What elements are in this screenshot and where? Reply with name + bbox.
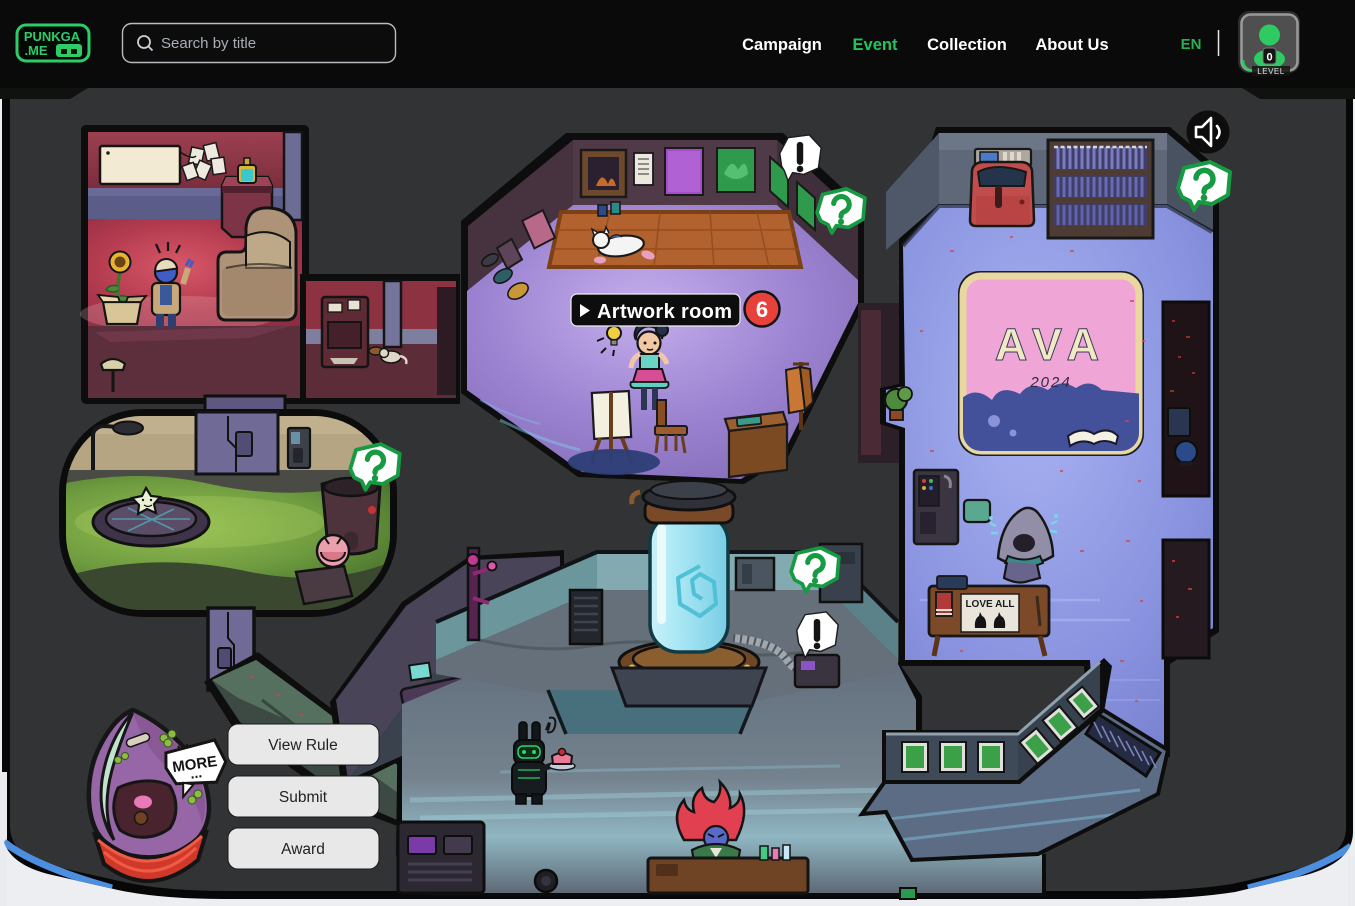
svg-text:Submit: Submit bbox=[279, 789, 328, 806]
svg-text:Campaign: Campaign bbox=[742, 36, 822, 54]
svg-text:EN: EN bbox=[1181, 36, 1202, 53]
svg-text:0: 0 bbox=[1266, 52, 1272, 64]
svg-text:PUNKGA: PUNKGA bbox=[24, 29, 81, 44]
svg-text:AVA: AVA bbox=[995, 319, 1107, 370]
svg-text:Search by title: Search by title bbox=[161, 35, 256, 52]
svg-text:Event: Event bbox=[853, 36, 898, 54]
svg-text:.ME: .ME bbox=[24, 43, 47, 58]
svg-text:6: 6 bbox=[756, 297, 768, 322]
svg-text:LOVE ALL: LOVE ALL bbox=[965, 599, 1014, 610]
svg-text:Artwork room: Artwork room bbox=[597, 301, 732, 323]
svg-text:Award: Award bbox=[281, 841, 325, 858]
svg-text:About Us: About Us bbox=[1035, 36, 1108, 54]
svg-text:LEVEL: LEVEL bbox=[1257, 67, 1284, 76]
svg-text:View Rule: View Rule bbox=[268, 737, 338, 754]
svg-text:...: ... bbox=[189, 764, 203, 781]
svg-text:Collection: Collection bbox=[927, 36, 1007, 54]
svg-text:2024: 2024 bbox=[1029, 374, 1071, 391]
